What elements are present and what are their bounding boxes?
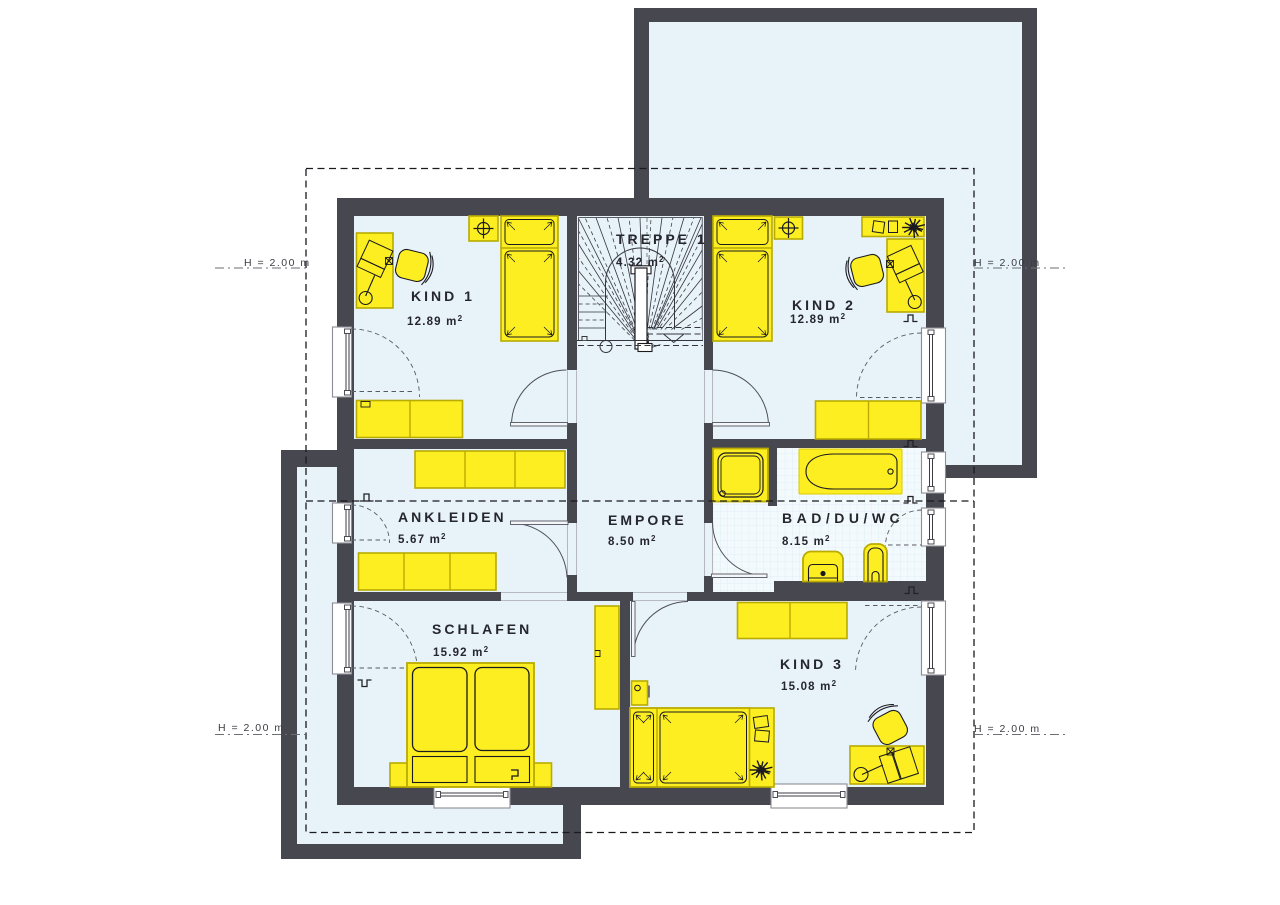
svg-text:8.15 m2: 8.15 m2 xyxy=(782,534,831,548)
svg-text:12.89 m2: 12.89 m2 xyxy=(407,314,463,328)
svg-text:15.92 m2: 15.92 m2 xyxy=(433,645,489,659)
svg-text:5.67 m2: 5.67 m2 xyxy=(398,532,447,546)
svg-text:KIND 3: KIND 3 xyxy=(780,656,844,672)
svg-text:4.32 m2: 4.32 m2 xyxy=(616,255,665,269)
svg-text:TREPPE 1: TREPPE 1 xyxy=(616,231,708,247)
svg-text:H = 2.00 m: H = 2.00 m xyxy=(974,723,1041,735)
svg-text:H = 2.00 m: H = 2.00 m xyxy=(218,722,285,734)
svg-text:KIND 2: KIND 2 xyxy=(792,297,856,313)
svg-text:8.50 m2: 8.50 m2 xyxy=(608,534,657,548)
svg-text:H = 2.00 m: H = 2.00 m xyxy=(244,257,311,269)
svg-text:12.89 m2: 12.89 m2 xyxy=(790,312,846,326)
svg-text:SCHLAFEN: SCHLAFEN xyxy=(432,621,532,637)
svg-text:BAD/DU/WC: BAD/DU/WC xyxy=(782,510,904,526)
svg-text:15.08 m2: 15.08 m2 xyxy=(781,679,837,693)
svg-text:EMPORE: EMPORE xyxy=(608,512,687,528)
svg-text:H = 2.00 m: H = 2.00 m xyxy=(974,257,1041,269)
svg-text:ANKLEIDEN: ANKLEIDEN xyxy=(398,509,507,525)
svg-text:KIND 1: KIND 1 xyxy=(411,288,475,304)
